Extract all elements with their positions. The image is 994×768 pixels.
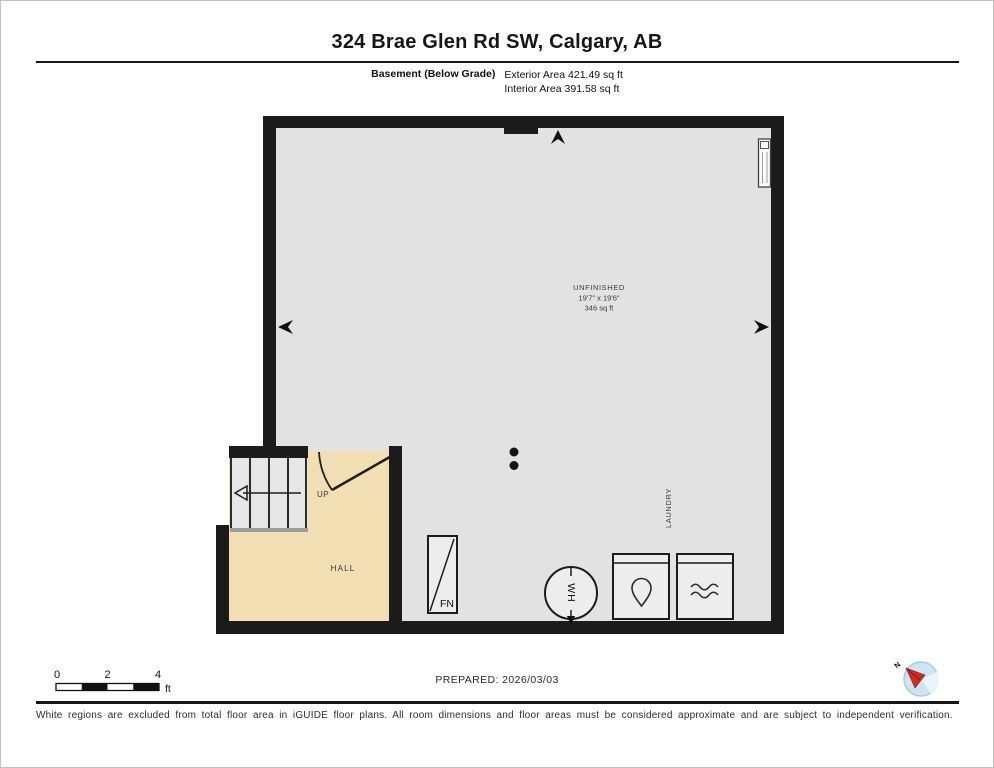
wall-left-main xyxy=(263,116,276,458)
laundry-label: LAUNDRY xyxy=(664,488,673,528)
electrical-panel xyxy=(759,139,771,187)
wall-left-lower xyxy=(216,525,229,634)
wall-right xyxy=(771,116,784,634)
room-label-unfinished: UNFINISHED xyxy=(573,283,625,292)
up-label: UP xyxy=(317,490,329,499)
stairs xyxy=(230,458,308,532)
room-dims-unfinished: 19'7" x 19'6" xyxy=(578,294,619,303)
north-label: N xyxy=(892,660,902,670)
floorplan-page: 324 Brae Glen Rd SW, Calgary, AB Basemen… xyxy=(0,0,994,768)
wall-bottom xyxy=(216,621,784,634)
footer-rule xyxy=(36,701,959,704)
footer-disclaimer: White regions are excluded from total fl… xyxy=(36,710,959,721)
water-heater-label: WH xyxy=(565,583,577,603)
prepared-date: PREPARED: 2026/03/03 xyxy=(1,674,993,686)
wall-hall-right xyxy=(389,446,402,621)
wall-top-notch xyxy=(504,116,538,134)
room-label-hall: HALL xyxy=(331,564,356,573)
furnace-label: FN xyxy=(440,598,454,610)
floorplan-svg: FN WH UNFINISHED 19'7" x 19'6" 346 xyxy=(1,1,994,768)
dryer-symbol xyxy=(677,554,733,619)
wall-stair-top xyxy=(229,446,308,458)
washer-symbol xyxy=(613,554,669,619)
room-area-unfinished: 346 sq ft xyxy=(585,304,615,313)
furnace-symbol: FN xyxy=(428,536,457,613)
